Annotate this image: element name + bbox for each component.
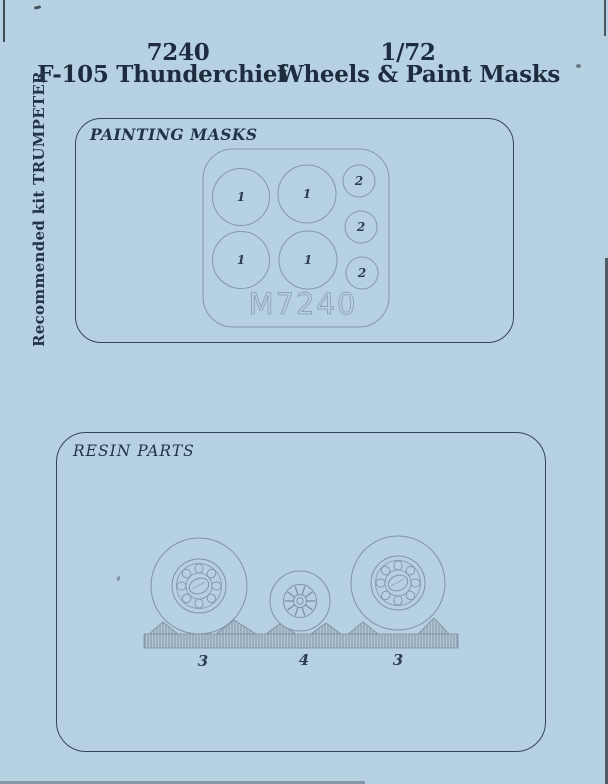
resin-parts-panel: RESIN PARTS xyxy=(56,432,546,752)
mask-sheet-figure: 1 1 1 1 2 2 2 M7240 xyxy=(202,148,391,329)
casting-bar xyxy=(144,634,458,648)
mask-part-number: 2 xyxy=(354,174,363,188)
pour-stub xyxy=(348,622,378,634)
painting-masks-label: PAINTING MASKS xyxy=(90,125,258,144)
tire-outline xyxy=(351,536,445,630)
resin-parts-figure: 3 4 3 xyxy=(141,526,471,676)
mask-part-number: 1 xyxy=(304,253,312,267)
tire-outline xyxy=(151,538,247,634)
main-wheel-figure xyxy=(351,536,445,630)
resin-part-number: 4 xyxy=(299,651,309,669)
mask-part-number: 1 xyxy=(237,190,245,204)
mask-sheet-code: M7240 xyxy=(249,287,358,321)
scan-speck xyxy=(576,64,581,68)
painting-masks-panel: PAINTING MASKS 1 1 1 1 2 2 2 M7240 xyxy=(75,118,514,343)
resin-part-number: 3 xyxy=(198,652,208,670)
recommended-kit-note: Recommended kit TRUMPETER xyxy=(30,117,50,347)
mask-part-number: 1 xyxy=(237,253,245,267)
mask-part-number: 2 xyxy=(357,266,366,280)
scan-speck xyxy=(34,5,41,9)
product-name: Wheels & Paint Masks xyxy=(278,61,560,88)
product-subject: F-105 Thunderchief xyxy=(37,61,287,88)
scan-edge-left xyxy=(3,0,5,42)
scan-edge-right-top xyxy=(604,0,606,36)
main-wheel-figure xyxy=(151,538,247,634)
scanned-instruction-sheet: 7240 1/72 F-105 Thunderchief Wheels & Pa… xyxy=(0,0,608,784)
mask-part-number: 1 xyxy=(303,187,311,201)
resin-part-number: 3 xyxy=(393,651,403,669)
resin-parts-label: RESIN PARTS xyxy=(73,442,195,460)
mask-part-number: 2 xyxy=(356,220,365,234)
nose-wheel-figure xyxy=(270,571,330,631)
tire-outline xyxy=(270,571,330,631)
